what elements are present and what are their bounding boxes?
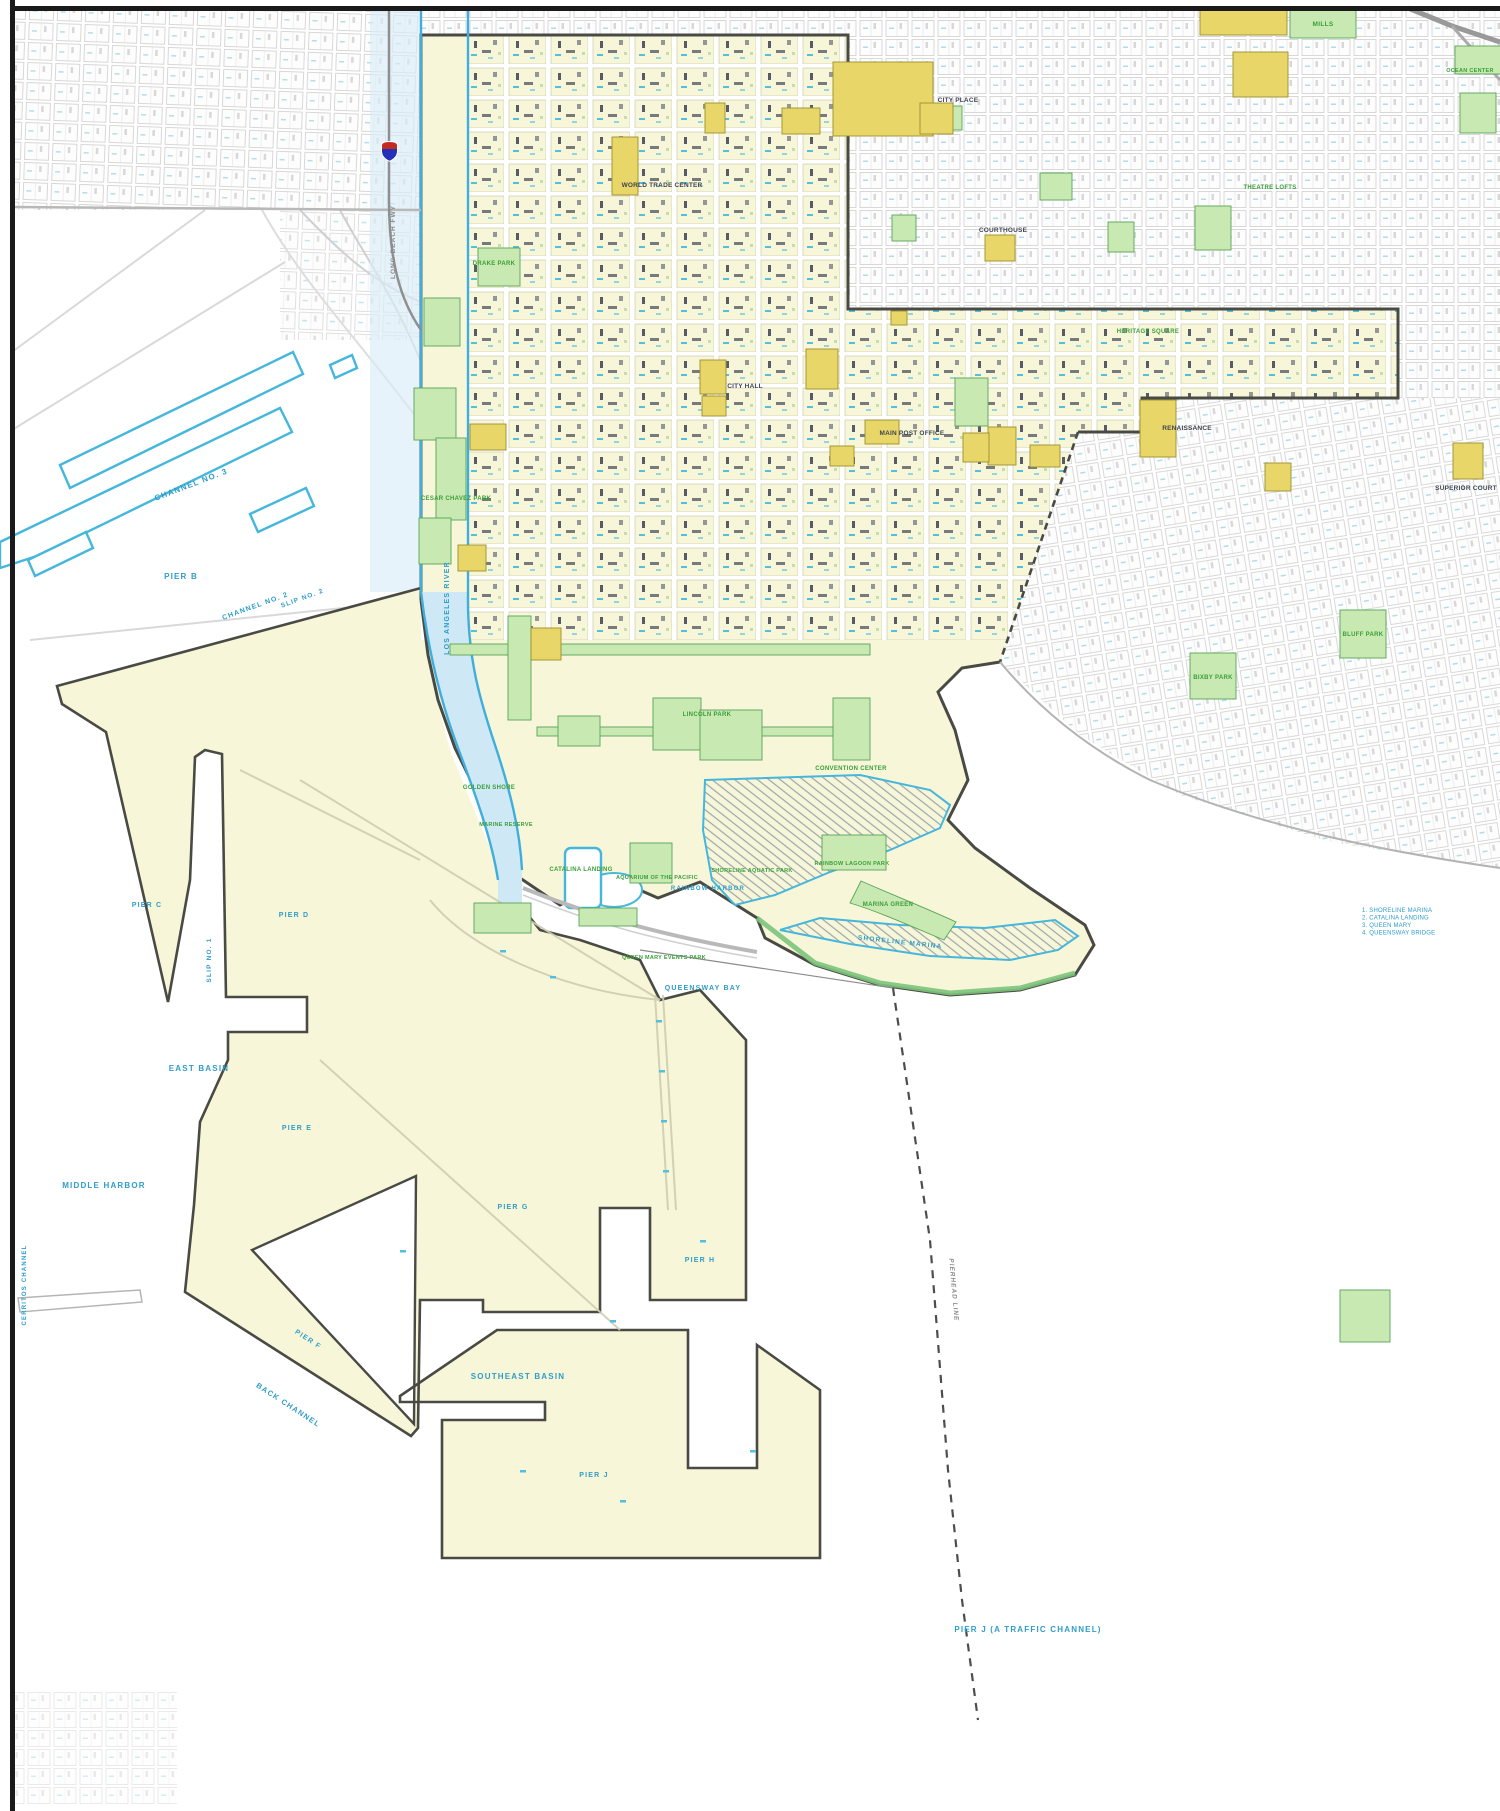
pier-outline-slip xyxy=(250,488,314,532)
label-main-post-office: MAIN POST OFFICE xyxy=(880,430,945,437)
label-pier-j: PIER J xyxy=(579,1472,608,1479)
grid-southeast xyxy=(1000,398,1500,868)
note-line-2: 2. CATALINA LANDING xyxy=(1362,916,1429,922)
label-pier-e: PIER E xyxy=(282,1125,312,1132)
label-pier-j-traffic-channel: PIER J (A TRAFFIC CHANNEL) xyxy=(954,1625,1101,1634)
label-catalina-landing: CATALINA LANDING xyxy=(549,867,612,873)
frame-top xyxy=(10,6,1500,11)
label-bluff-park: BLUFF PARK xyxy=(1343,632,1384,638)
label-queensway-bay: QUEENSWAY BAY xyxy=(665,985,741,992)
label-theatre-lofts: THEATRE LOFTS xyxy=(1243,185,1296,191)
label-renaissance: RENAISSANCE xyxy=(1162,425,1212,432)
label-pier-b: PIER B xyxy=(164,572,198,581)
label-heritage-square: HERITAGE SQUARE xyxy=(1117,329,1179,335)
label-pier-c: PIER C xyxy=(132,902,163,909)
note-line-4: 4. QUEENSWAY BRIDGE xyxy=(1362,931,1435,937)
label-city-place: CITY PLACE xyxy=(938,97,979,104)
label-world-trade-center: WORLD TRADE CENTER xyxy=(622,182,703,189)
label-lincoln-park: LINCOLN PARK xyxy=(683,712,732,718)
label-mills: MILLS xyxy=(1313,21,1334,28)
label-city-hall: CITY HALL xyxy=(727,383,763,390)
label-southeast-basin: SOUTHEAST BASIN xyxy=(471,1372,565,1381)
label-slip-no1: SLIP NO. 1 xyxy=(206,937,213,982)
label-superior-court: SUPERIOR COURT xyxy=(1435,485,1497,492)
label-rainbow-lagoon-park: RAINBOW LAGOON PARK xyxy=(815,861,890,867)
map-canvas[interactable]: CHANNEL NO. 3 PIER B CHANNEL NO. 2 SLIP … xyxy=(0,0,1500,1811)
label-pierhead-line: PIERHEAD LINE xyxy=(947,1258,959,1322)
pier-outline-stub xyxy=(330,355,357,378)
grid-northwest xyxy=(12,8,421,210)
label-courthouse: COURTHOUSE xyxy=(979,227,1028,234)
label-pier-d: PIER D xyxy=(279,912,310,919)
catalina-landing-basin xyxy=(565,848,601,908)
label-cesar-chavez-park: CESAR CHAVEZ PARK xyxy=(421,496,492,502)
label-marina-green: MARINA GREEN xyxy=(863,902,913,908)
label-drake-park: DRAKE PARK xyxy=(473,261,516,267)
west-pier-outlines xyxy=(0,352,357,576)
label-convention-center: CONVENTION CENTER xyxy=(815,766,887,772)
note-line-1: 1. SHORELINE MARINA xyxy=(1362,908,1432,914)
map-viewport: CHANNEL NO. 3 PIER B CHANNEL NO. 2 SLIP … xyxy=(0,0,1500,1811)
label-bixby-park: BIXBY PARK xyxy=(1193,675,1233,681)
grid-southwest-patch xyxy=(12,1690,177,1805)
label-rainbow-harbor: RAINBOW HARBOR xyxy=(671,886,745,892)
label-marine-reserve: MARINE RESERVE xyxy=(479,822,533,828)
label-queen-mary-events-park: QUEEN MARY EVENTS PARK xyxy=(622,955,706,961)
label-golden-shore: GOLDEN SHORE xyxy=(463,785,515,791)
map-note-block: 1. SHORELINE MARINA 2. CATALINA LANDING … xyxy=(1362,908,1435,937)
river-floodway-band xyxy=(370,8,421,592)
label-middle-harbor: MIDDLE HARBOR xyxy=(62,1181,146,1190)
label-pier-g: PIER G xyxy=(498,1204,529,1211)
label-los-angeles-river: LOS ANGELES RIVER xyxy=(444,561,451,655)
note-line-3: 3. QUEEN MARY xyxy=(1362,923,1412,929)
grid-east xyxy=(1398,309,1500,400)
label-east-basin: EAST BASIN xyxy=(169,1064,229,1073)
label-ocean-center: OCEAN CENTER xyxy=(1446,68,1494,74)
boundary-dashed-traffic-channel xyxy=(893,988,978,1720)
label-shoreline-aquatic-park: SHORELINE AQUATIC PARK xyxy=(711,868,792,874)
label-back-channel: BACK CHANNEL xyxy=(255,1381,323,1429)
label-aquarium-of-the-pacific: AQUARIUM OF THE PACIFIC xyxy=(616,875,698,881)
label-pier-h: PIER H xyxy=(685,1257,716,1264)
frame-left xyxy=(10,0,15,1811)
faint-pier-southwest xyxy=(18,1290,142,1312)
label-long-beach-fwy: LONG BEACH FWY xyxy=(390,205,397,279)
label-cerritos-channel: CERRITOS CHANNEL xyxy=(22,1244,28,1325)
